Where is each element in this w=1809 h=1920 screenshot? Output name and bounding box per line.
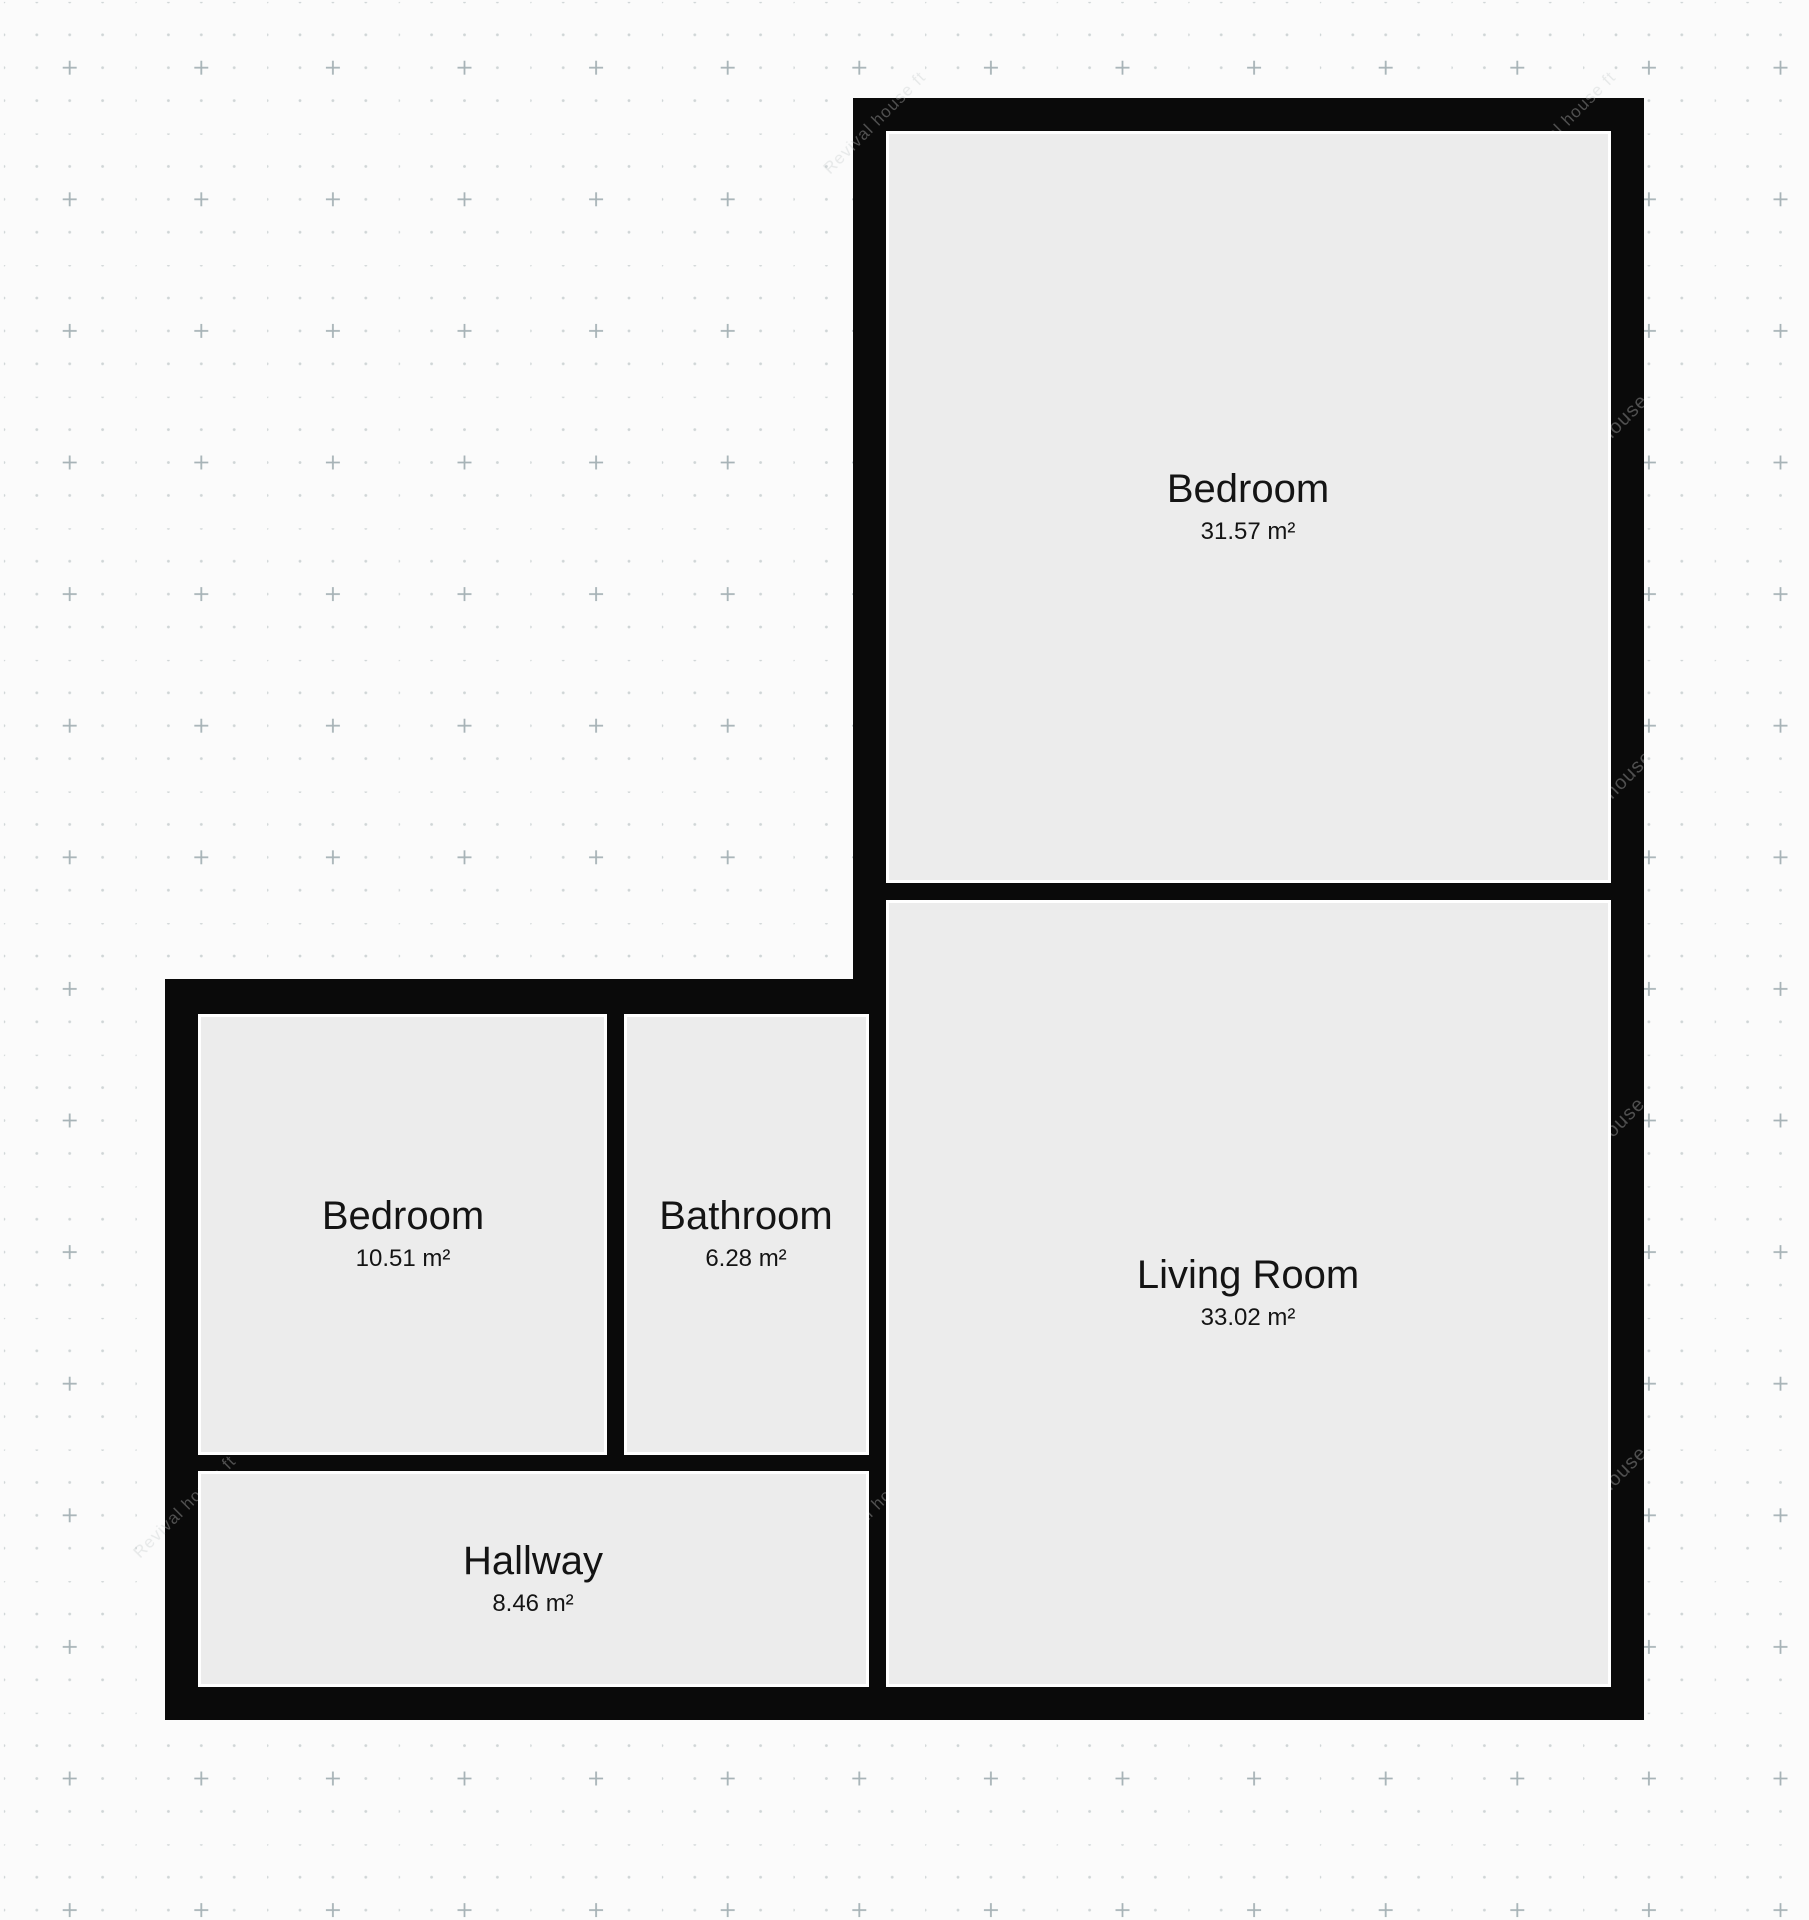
svg-text:Bathroom: Bathroom (659, 1194, 832, 1238)
svg-text:Living Room: Living Room (1137, 1253, 1359, 1297)
svg-text:6.28 m²: 6.28 m² (705, 1245, 786, 1272)
svg-text:33.02 m²: 33.02 m² (1201, 1304, 1296, 1331)
svg-text:Bedroom: Bedroom (1167, 467, 1329, 511)
svg-text:8.46 m²: 8.46 m² (492, 1590, 573, 1617)
svg-text:Bedroom: Bedroom (322, 1194, 484, 1238)
svg-text:Hallway: Hallway (463, 1539, 603, 1583)
svg-text:10.51 m²: 10.51 m² (356, 1245, 451, 1272)
svg-text:31.57 m²: 31.57 m² (1201, 518, 1296, 545)
